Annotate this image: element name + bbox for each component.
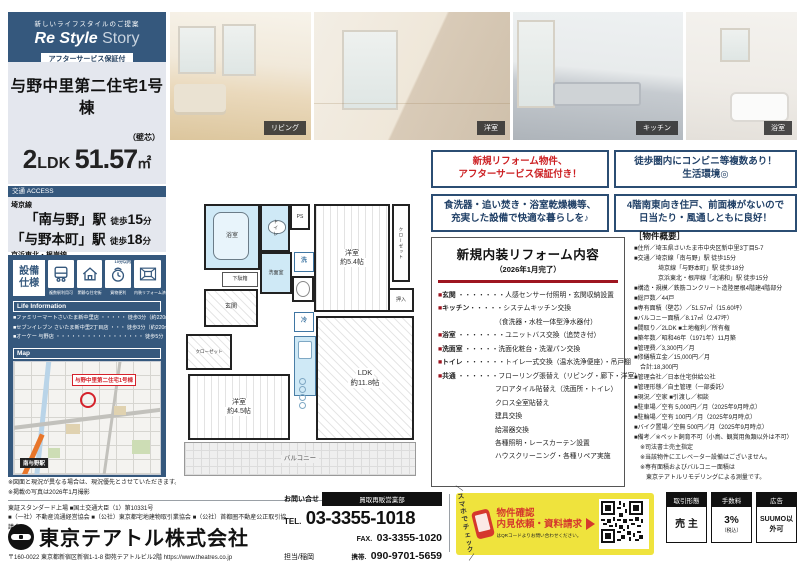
kitchen-burners [298, 377, 310, 391]
floor-plan: 浴室 トイレ PS 洗面室 洗 下駄箱 玄関 クローゼット 洋室 約5.4帖 ク… [176, 148, 428, 493]
license-line: 東証スタンダード上場 ■国土交通大臣（1）第10331号 [8, 505, 288, 514]
reform-item: ■玄関 ・・・・・・・人感センサー付照明・玄関収納設置 [438, 289, 618, 302]
photo-bathroom: 浴室 [686, 12, 797, 140]
ad-value: SUUMO以外可 [757, 515, 796, 533]
ad-box: 広告 SUUMO以外可 [756, 492, 797, 543]
reform-item: ■トイレ ・・・・・・トイレ一式交換（温水洗浄便座）・吊戸棚 [438, 356, 618, 369]
qr-callout-box: ＼スマホでチェック／ 物件確認 内見依頼・資料請求 はQRコードよりお問い合わせ… [456, 493, 654, 555]
reform-item: ■洗面室 ・・・・・洗面化粧台・洗濯パン交換 [438, 343, 618, 356]
life-information-list: ■ファミリーマートさいたま新中里店 ・・・・・ 徒歩3分（約220m） ■セブン… [13, 314, 161, 343]
overview-header: ［物件概要］ [634, 230, 798, 242]
floorplan-ps: PS [290, 204, 310, 230]
highlight-box: 新規リフォーム物件、アフターサービス保証付き！ [431, 150, 609, 188]
fee-box: 手数料 3% （税込） [711, 492, 752, 543]
company-address: 〒160-0022 東京都新宿区新宿1-1-8 御苑テアトルビル2階 https… [8, 552, 232, 561]
photo-window [222, 24, 256, 76]
arrow-icon [586, 518, 595, 530]
brand-tagline: 新しいライフスタイルのご提案 [8, 18, 166, 28]
photo-label: 浴室 [764, 121, 792, 135]
flyer-page: 新しいライフスタイルのご提案 Re Style Story アフターサービス保証… [0, 0, 800, 565]
reform-item: フロアタイル貼替え（洗面所・トイレ） [438, 383, 618, 396]
company-logo [8, 524, 34, 550]
company-name: 東京テアトル株式会社 [39, 522, 249, 551]
property-overview: ［物件概要］ ■住所／埼玉県さいたま市中央区新中里3丁目5-7 ■交通／埼京線「… [634, 230, 798, 484]
map-header: Map [13, 348, 161, 359]
photo-kitchen: キッチン [513, 12, 683, 140]
reform-item: ■共通 ・・・・・・フローリング張替え（リビング・廊下・洋室） [438, 370, 618, 383]
photo-label: 洋室 [477, 121, 505, 135]
reform-item: ■キッチン・・・・・システムキッチン交換 [438, 302, 618, 315]
photo-label: キッチン [636, 121, 678, 135]
reform-rule [438, 280, 618, 283]
facility-panel: 設備仕様 複数駅利用可 閑静な住宅街 10分以内 買物便利 [8, 255, 166, 477]
highlight-box: 食洗器・追い焚き・浴室乾燥機等、充実した設備で快適な暮らしを♪ [431, 194, 609, 232]
qr-callout-text: 物件確認 内見依頼・資料請求 はQRコードよりお問い合わせください。 [496, 509, 582, 538]
access-panel: 埼京線 「南与野」駅 徒歩15分 「与野本町」駅 徒歩18分 京浜東北・根岸線 … [8, 197, 166, 252]
feature-tile-multistation: 複数駅利用可 [48, 260, 74, 296]
deal-type-box: 取引形態 売 主 [666, 492, 707, 543]
fax-row: FAX. 03-3355-1020 [284, 528, 442, 546]
life-information-header: Life Information [13, 301, 161, 312]
deal-info-boxes: 取引形態 売 主 手数料 3% （税込） 広告 SUUMO以外可 [666, 492, 797, 543]
area-row: （壁芯） 2LDK 51.57㎡ [8, 144, 166, 175]
shopping-clock-icon: 10分以内 [105, 260, 131, 288]
photo-bedroom: 洋室 [314, 12, 510, 140]
photo-window [517, 20, 555, 108]
station-row: 「与野本町」駅 徒歩18分 [11, 230, 163, 250]
fee-value: 3% [724, 515, 738, 527]
floorplan-oshiire: 押入 [388, 288, 414, 312]
person-row: 担当/稲岡 携帯. 090-9701-5659 [284, 546, 442, 564]
property-name-panel: 与野中里第二住宅1号棟 （壁芯） 2LDK 51.57㎡ [8, 62, 166, 184]
floorplan-entrance: 玄関 [204, 289, 258, 327]
rail-line: 埼京線 [11, 200, 163, 210]
map-park [48, 448, 60, 458]
floorplan-closet-strip: クローゼット [392, 204, 410, 282]
kitchen-sink-shape [298, 341, 312, 359]
reform-item: クロス全室貼替え [438, 397, 618, 410]
feature-tile-quiet: 閑静な住宅街 [77, 260, 103, 296]
fee-note: （税込） [721, 527, 741, 534]
photo-floor-line [314, 103, 510, 104]
highlight-box: 徒歩圏内にコンビニ等複数あり！生活環境◎ [614, 150, 797, 188]
floorplan-laundry: 洗 [294, 252, 314, 272]
floorplan-balcony: バルコニー [184, 442, 416, 476]
access-header: 交通 ACCESS [8, 186, 166, 197]
life-info-item: ■ファミリーマートさいたま新中里店 ・・・・・ 徒歩3分（約220m） [13, 314, 161, 324]
floorplan-closet: クローゼット [186, 334, 232, 370]
contact-person: 担当/稲岡 [284, 552, 314, 562]
map-station-label: 南与野駅 [20, 458, 48, 468]
photo-sofa [174, 84, 226, 112]
company-row: 東京テアトル株式会社 [8, 522, 249, 551]
floorplan-ldk: LDK 約11.8帖 [316, 316, 414, 440]
photo-mirror [720, 28, 750, 62]
mobile-number: 090-9701-5659 [371, 550, 442, 562]
map-park [132, 440, 150, 454]
reform-subtitle: （2026年1月完了） [438, 264, 618, 275]
floorplan-sink [292, 276, 314, 302]
map-property-label: 与野中里第二住宅1号棟 [72, 374, 136, 386]
floorplan-fridge: 冷 [294, 312, 314, 332]
reform-item: 給湯器交換 [438, 424, 618, 437]
floorplan-shoebox: 下駄箱 [222, 272, 258, 287]
feature-tile-reform: 内装リフォーム済 [134, 260, 161, 296]
photo-window [178, 26, 216, 74]
map: 与野中里第二住宅1号棟 南与野駅 [13, 361, 161, 475]
deal-type-value: 売 主 [675, 519, 698, 531]
sink-shape [296, 281, 310, 297]
fax-number: 03-3355-1020 [377, 532, 442, 544]
feature-tiles: 設備仕様 複数駅利用可 閑静な住宅街 10分以内 買物便利 [13, 260, 161, 296]
reform-item: 各種照明・レースカーテン設置 [438, 437, 618, 450]
brand-box: 新しいライフスタイルのご提案 Re Style Story アフターサービス保証… [8, 12, 166, 62]
house-icon [77, 260, 103, 288]
map-building [66, 424, 80, 434]
photo-strip: リビング 洋室 キッチン 浴室 [170, 12, 798, 140]
feature-tile-shopping: 10分以内 買物便利 [105, 260, 131, 296]
train-icon [48, 260, 74, 288]
tel-number: 03-3355-1018 [306, 507, 415, 528]
reform-item: ハウスクリーニング・各種リペア実施 [438, 450, 618, 463]
qr-code [599, 499, 649, 549]
floorplan-kitchen-counter [294, 336, 316, 396]
floorplan-bedroom-2: 洋室 約4.5帖 [188, 374, 290, 440]
life-info-item: ■オーケー 与野店 ・・・・・・・・・・・・・・・・・ 徒歩5分（約350m） [13, 333, 161, 343]
life-info-item: ■セブンイレブン さいたま新中里2丁目店 ・・・ 徒歩3分（約220m） [13, 324, 161, 334]
photo-kitchen-sink [553, 82, 641, 106]
photo-window [342, 30, 398, 110]
spec-title: 設備仕様 [13, 260, 45, 296]
map-property-marker [80, 392, 96, 408]
smartphone-icon [471, 508, 495, 540]
station-row: 「南与野」駅 徒歩15分 [11, 210, 163, 230]
reform-item: ■浴室 ・・・・・・・ユニットバス交換（追焚き付） [438, 329, 618, 342]
floorplan-bath: 浴室 [204, 204, 260, 270]
highlight-boxes: 新規リフォーム物件、アフターサービス保証付き！ 徒歩圏内にコンビニ等複数あり！生… [431, 150, 798, 232]
contact-block: お問い合せ 買取再販営業部 TEL. 03-3355-1018 FAX. 03-… [284, 492, 442, 564]
photo-bathtub [730, 92, 789, 122]
contact-label: お問い合せ [284, 494, 319, 504]
reform-title: 新規内装リフォーム内容 [438, 244, 618, 263]
map-building [114, 406, 126, 415]
footer-divider [449, 494, 450, 552]
photo-living: リビング [170, 12, 311, 140]
photo-label: リビング [264, 121, 306, 135]
floorplan-bedroom-1: 洋室 約5.4帖 [314, 204, 390, 312]
reform-item: （食洗器・水栓一体型浄水器付） [438, 316, 618, 329]
area-note: （壁芯） [128, 132, 160, 143]
interior-icon [134, 260, 161, 288]
reform-box: 新規内装リフォーム内容 （2026年1月完了） ■玄関 ・・・・・・・人感センサ… [431, 237, 625, 487]
reform-item: 建具交換 [438, 410, 618, 423]
floor-area: 51.57 [75, 144, 138, 174]
tel-row: TEL. 03-3355-1018 [284, 507, 442, 529]
floorplan-washroom: 洗面室 [260, 252, 292, 294]
highlight-box: 4階南東向き住戸、前面棟がないので日当たり・風通しともに良好！ [614, 194, 797, 232]
property-name: 与野中里第二住宅1号棟 [8, 74, 166, 118]
floorplan-toilet: トイレ [260, 204, 290, 252]
brand-name: Re Style Story [8, 30, 166, 48]
department-bar: 買取再販営業部 [322, 492, 442, 506]
